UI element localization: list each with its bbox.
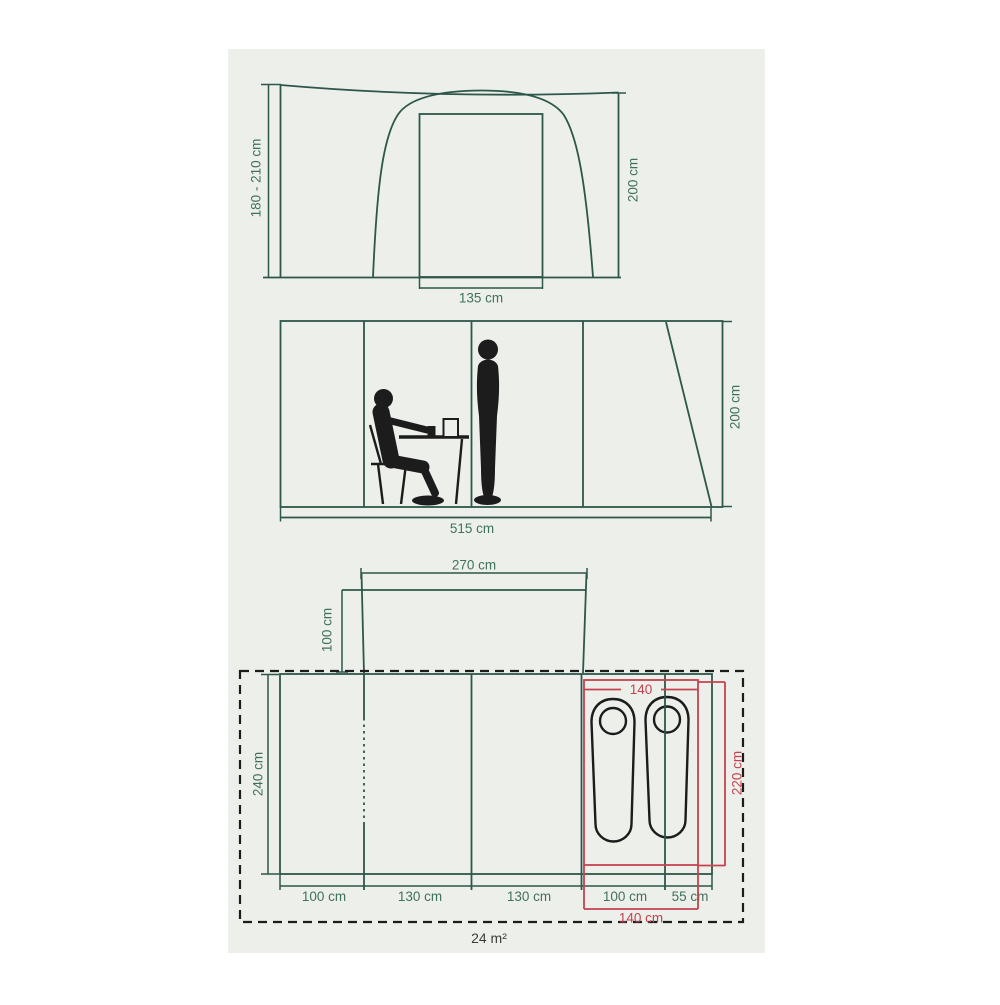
sleeping-width-bottom-label: 140 cm (619, 911, 663, 926)
segment-label-1: 100 cm (302, 889, 346, 904)
sleeping-width-label: 140 (630, 682, 653, 697)
porch-depth-label: 100 cm (320, 608, 335, 652)
side-length-label: 515 cm (450, 521, 494, 536)
standing-person-feet (474, 495, 501, 505)
sleeping-depth-label: 220 cm (730, 751, 745, 795)
tent-dimensions-diagram: 180 - 210 cm 135 cm 200 cm 515 cm 200 (0, 0, 1000, 1000)
segment-label-2: 130 cm (398, 889, 442, 904)
porch-width-label: 270 cm (452, 558, 496, 573)
segment-label-3: 130 cm (507, 889, 551, 904)
tent-dimension-sheet: 180 - 210 cm 135 cm 200 cm 515 cm 200 (0, 0, 1000, 1000)
segment-label-4: 100 cm (603, 889, 647, 904)
seated-person-thigh (391, 461, 423, 467)
total-area-label: 24 m² (471, 930, 507, 946)
side-height-label: 200 cm (728, 385, 743, 429)
front-right-height-label: 200 cm (626, 158, 641, 202)
seated-person-foot (412, 496, 444, 506)
floor-depth-label: 240 cm (251, 752, 266, 796)
standing-person-head (478, 340, 498, 360)
door-width-label: 135 cm (459, 291, 503, 306)
segment-label-5: 55 cm (672, 889, 709, 904)
front-height-range-label: 180 - 210 cm (249, 139, 264, 218)
box-on-table (444, 419, 459, 437)
cup-on-table (428, 426, 436, 437)
